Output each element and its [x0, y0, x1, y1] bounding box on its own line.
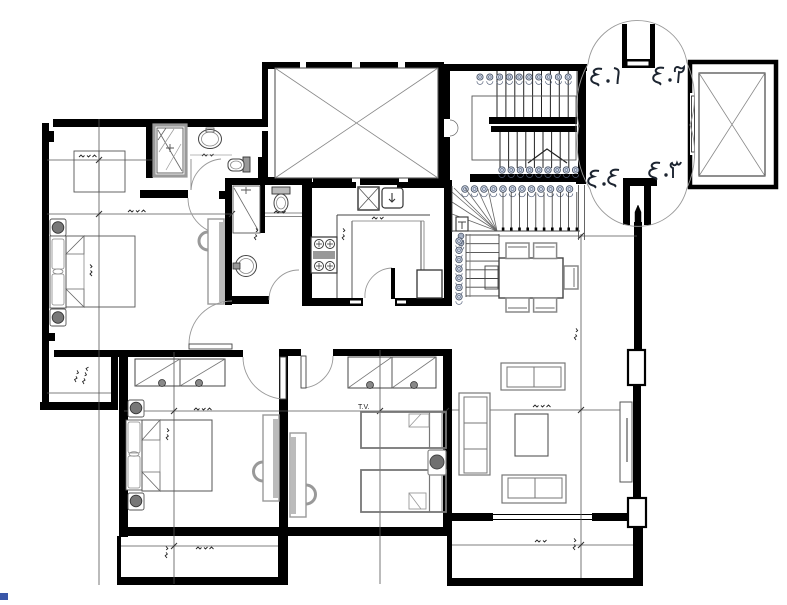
- svg-text:T.V.: T.V.: [358, 404, 369, 411]
